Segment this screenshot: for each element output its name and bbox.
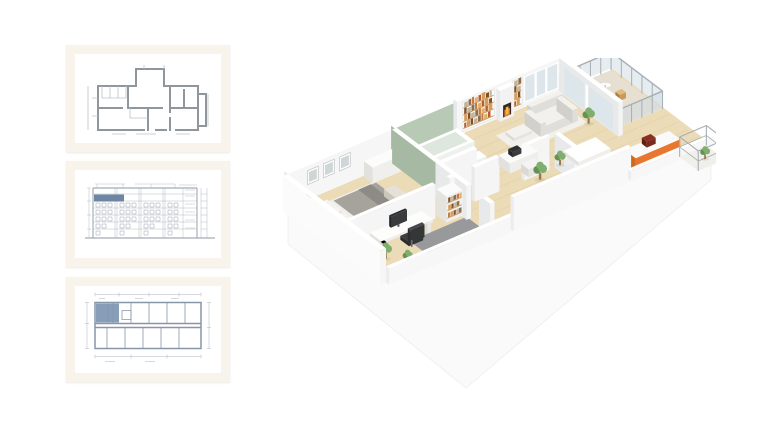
- desk-leg-left: [425, 223, 428, 234]
- highlighted-unit: [96, 304, 119, 323]
- plant-foliage: [585, 107, 592, 114]
- book: [488, 111, 491, 118]
- plant-foliage: [536, 162, 543, 169]
- book: [454, 202, 456, 207]
- book: [490, 90, 492, 97]
- front-wall-low-left: [386, 266, 389, 284]
- chimney-breast-front: [500, 85, 514, 122]
- plant-trunk: [704, 154, 706, 159]
- thumbnail-apartment-floor-plan[interactable]: [66, 45, 230, 152]
- fire-flame: [506, 106, 509, 114]
- hall-wall-front: [467, 184, 472, 220]
- chimney-breast-left: [496, 88, 500, 122]
- book: [472, 97, 474, 105]
- west-wall-front: [381, 248, 386, 284]
- plant-trunk: [588, 118, 590, 124]
- plant-trunk: [559, 160, 561, 165]
- book: [456, 209, 458, 214]
- sofa-arm-front: [573, 108, 578, 123]
- highlighted-floor-unit: [94, 195, 124, 202]
- book: [448, 212, 450, 217]
- book: [479, 95, 482, 102]
- book: [460, 192, 462, 197]
- window-mullion: [545, 67, 547, 93]
- desk-leg-front: [428, 223, 432, 234]
- window-wall-front: [618, 101, 623, 137]
- building-elevation-drawing: [75, 170, 221, 258]
- book: [451, 196, 453, 201]
- drawing-gallery: [0, 0, 260, 440]
- plant-foliage: [557, 151, 563, 157]
- front-wall-tall-left: [511, 195, 514, 231]
- book: [464, 122, 466, 128]
- window-mullion: [535, 72, 537, 98]
- apartment-floor-plan-drawing: [75, 54, 221, 143]
- monitor-left: [389, 215, 391, 227]
- book: [514, 101, 516, 107]
- book: [478, 115, 481, 122]
- apartment-3d-floor-plan-image: [276, 58, 716, 394]
- office-chair-back-left: [408, 228, 410, 243]
- book: [485, 105, 488, 112]
- drawing-paper: [75, 286, 221, 373]
- sofa-arm-front: [541, 122, 546, 137]
- book: [451, 203, 453, 208]
- drawing-paper: [75, 54, 221, 143]
- thumbnail-building-elevation[interactable]: [66, 161, 230, 267]
- thumbnail-building-level-plan[interactable]: [66, 277, 230, 382]
- hall-stub-left: [472, 165, 475, 201]
- building-level-plan-drawing: [75, 286, 221, 373]
- apartment-3d-render: [276, 58, 716, 394]
- drawing-paper: [75, 170, 221, 258]
- book: [482, 100, 485, 107]
- plant-foliage: [702, 146, 707, 151]
- plant-foliage: [405, 250, 410, 255]
- plant-trunk: [539, 173, 541, 180]
